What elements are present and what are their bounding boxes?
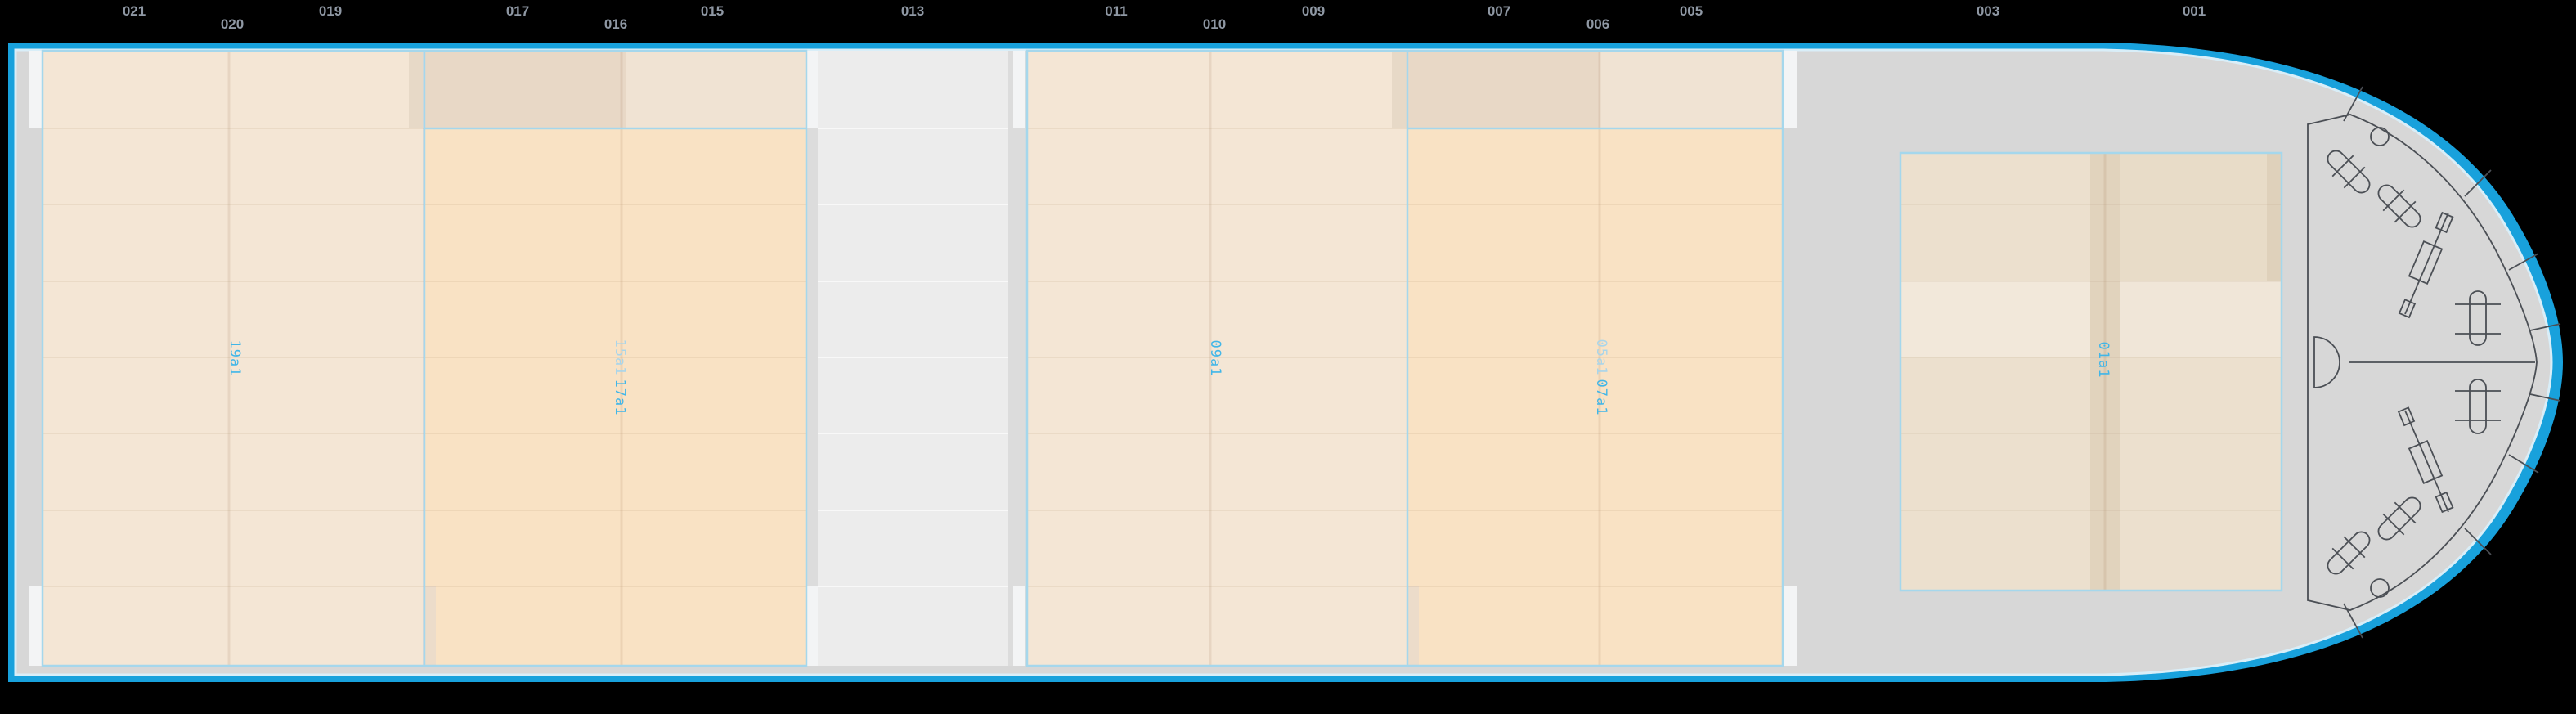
- deck-block: [1784, 51, 1797, 128]
- bay-label-09a1: 09a1: [1207, 340, 1223, 377]
- gap-column-left: [806, 51, 818, 666]
- bay-01-cell-light-left: [1901, 281, 2090, 357]
- deck-block: [1784, 586, 1797, 666]
- deck-block: [29, 586, 43, 666]
- frame-number: 006: [1586, 16, 1609, 32]
- deck-block: [29, 51, 43, 128]
- frame-number: 017: [506, 3, 529, 19]
- frame-number: 015: [701, 3, 724, 19]
- bay-17-hatch-left: [425, 51, 626, 128]
- bay-17-hatch-right: [626, 51, 806, 128]
- bay-label-15a1: 15a1: [612, 339, 628, 376]
- bay-label-19a1: 19a1: [227, 340, 243, 377]
- bay-label-01a1: 01a1: [2095, 342, 2112, 379]
- deck-block: [806, 51, 818, 128]
- bay-label-05a1: 05a1: [1593, 339, 1609, 376]
- frame-number: 009: [1302, 3, 1325, 19]
- frame-number: 013: [901, 3, 924, 19]
- bay-07-hatch-right: [1600, 51, 1783, 128]
- frame-number: 007: [1488, 3, 1510, 19]
- deck-block: [806, 586, 818, 666]
- ship-deck-plan: 021 020 019 017 016 015 013 011 010 009 …: [0, 0, 2576, 714]
- frame-number: 005: [1680, 3, 1703, 19]
- bay-09-hatch-edge: [1392, 51, 1407, 128]
- frame-number: 020: [221, 16, 244, 32]
- frame-number: 010: [1203, 16, 1226, 32]
- bay-07-hatch-left: [1408, 51, 1600, 128]
- frame-number: 001: [2183, 3, 2206, 19]
- bay-label-17a1: 17a1: [612, 379, 628, 416]
- bay-19-hatch-edge: [409, 51, 423, 128]
- bay-07-bottom-edge: [1408, 586, 1419, 666]
- gap-column-right: [1008, 51, 1027, 666]
- frame-number: 011: [1105, 3, 1127, 19]
- bay-17-bottom-edge: [425, 586, 436, 666]
- bay-01-cell-dark: [2120, 153, 2282, 281]
- frame-number: 016: [604, 16, 627, 32]
- deck-block: [1013, 586, 1025, 666]
- bay-label-07a1: 07a1: [1593, 379, 1609, 416]
- deck-block: [1013, 51, 1025, 128]
- frame-number: 019: [319, 3, 342, 19]
- frame-number: 021: [123, 3, 146, 19]
- bay-01-cell-light-right: [2120, 281, 2282, 357]
- frame-number: 003: [1977, 3, 1999, 19]
